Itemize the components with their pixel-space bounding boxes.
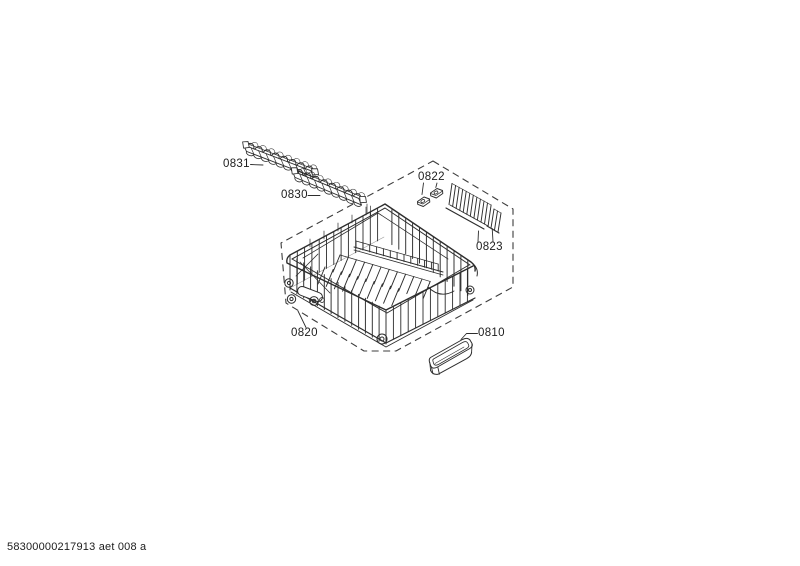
parts-diagram-page: 0831 0830 0822 0823 0820 0810 5830000021… — [0, 0, 800, 566]
part-0810-tray-drawing — [429, 338, 472, 374]
leader-0822-left — [422, 183, 424, 195]
part-label-0823: 0823 — [476, 241, 503, 253]
diagram-canvas — [0, 0, 800, 566]
exploded-view-drawing — [0, 0, 800, 566]
part-label-0810: 0810 — [478, 327, 505, 339]
leader-0831 — [251, 165, 264, 166]
document-number: 58300000217913 aet 008 a — [7, 541, 146, 553]
part-label-0831: 0831 — [223, 158, 250, 170]
part-label-0822: 0822 — [418, 171, 445, 183]
part-0830-tine-row-drawing — [287, 164, 369, 209]
part-0831-tine-row-drawing — [239, 138, 321, 181]
part-0822-clips-drawing — [418, 189, 443, 207]
leader-0822-right — [436, 183, 437, 188]
part-label-0820: 0820 — [291, 327, 318, 339]
leader-0823-right — [492, 229, 493, 242]
leader-0823-left — [478, 231, 479, 242]
part-0820-basket-drawing — [285, 204, 478, 347]
part-0823-comb-drawing — [446, 184, 501, 234]
part-label-0830: 0830 — [281, 189, 308, 201]
